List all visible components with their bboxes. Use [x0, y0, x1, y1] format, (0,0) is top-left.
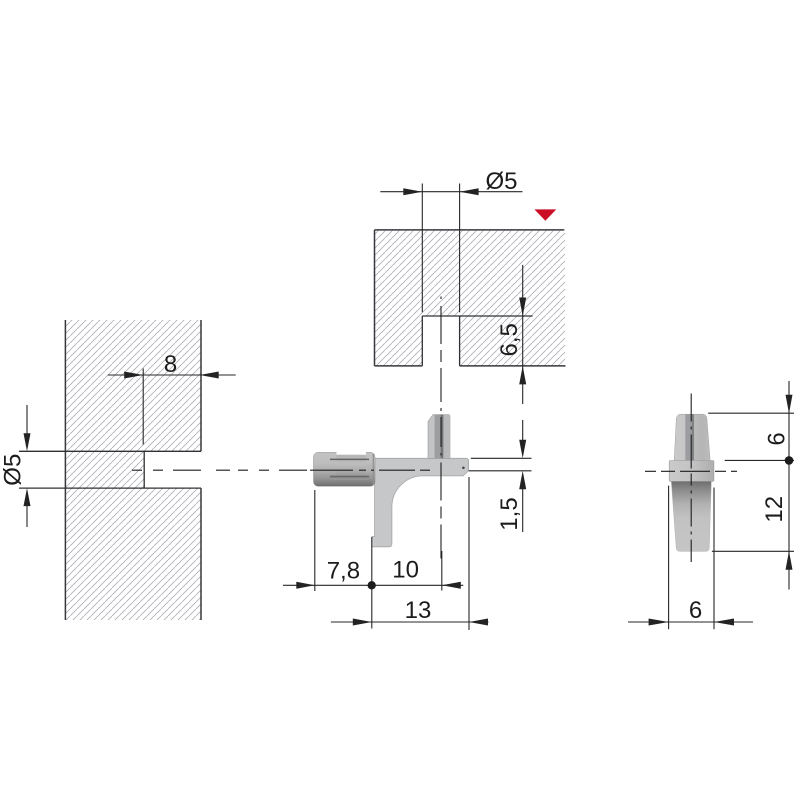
svg-text:6: 6 [764, 432, 791, 445]
svg-text:13: 13 [405, 597, 432, 624]
svg-text:Ø5: Ø5 [0, 454, 27, 486]
svg-text:1,5: 1,5 [496, 497, 523, 530]
svg-text:7,8: 7,8 [327, 558, 360, 585]
svg-text:12: 12 [761, 496, 788, 523]
svg-text:6,5: 6,5 [496, 323, 523, 356]
svg-text:Ø5: Ø5 [485, 168, 517, 195]
svg-text:6: 6 [689, 597, 702, 624]
svg-text:8: 8 [164, 351, 177, 378]
svg-text:10: 10 [392, 556, 419, 583]
